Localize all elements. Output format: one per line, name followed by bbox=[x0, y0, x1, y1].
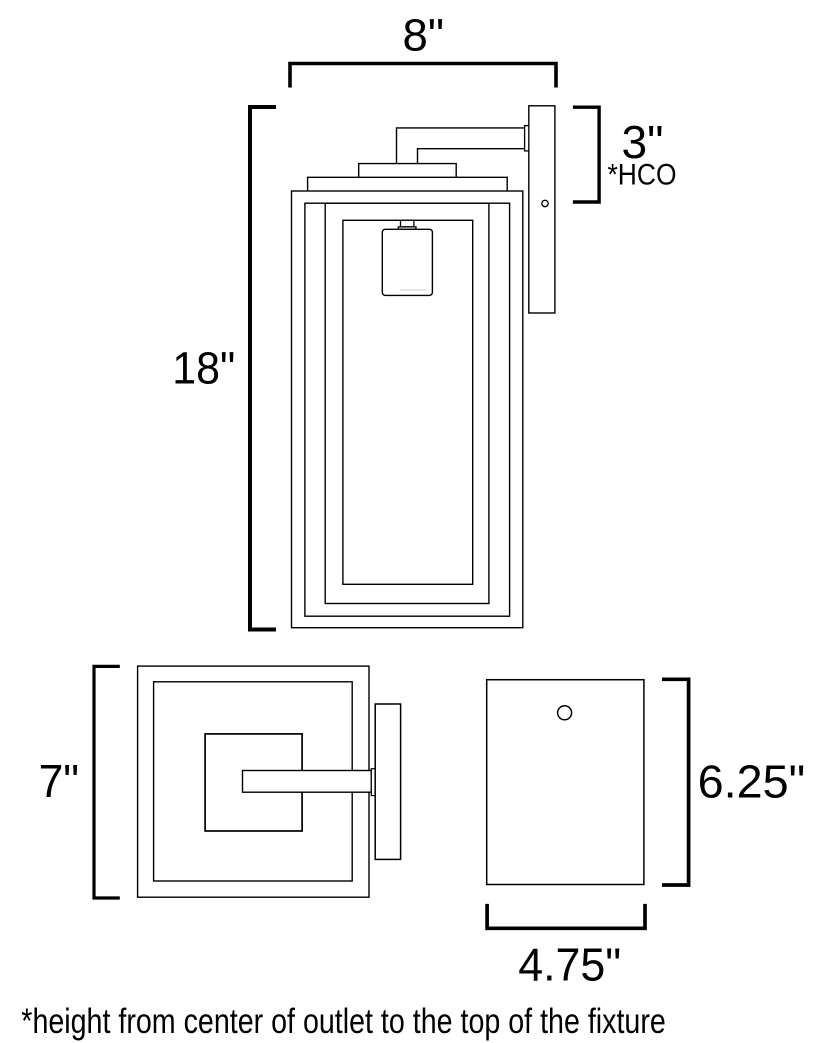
svg-text:7": 7" bbox=[39, 755, 80, 807]
svg-text:6.25": 6.25" bbox=[698, 756, 806, 808]
svg-text:*height from center of outlet: *height from center of outlet to the top… bbox=[21, 1001, 666, 1041]
svg-text:4.75": 4.75" bbox=[518, 939, 621, 991]
svg-text:8": 8" bbox=[403, 10, 445, 61]
svg-text:*HCO: *HCO bbox=[608, 158, 677, 191]
svg-text:18": 18" bbox=[172, 342, 235, 393]
